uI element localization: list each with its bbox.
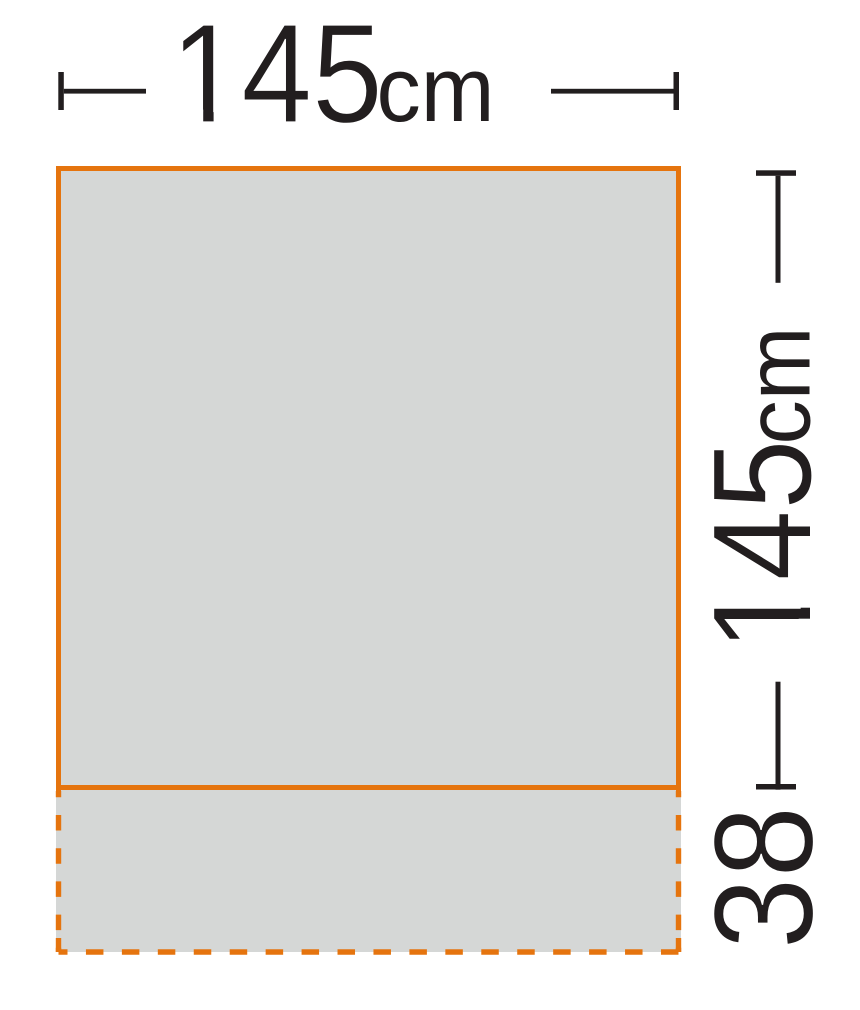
svg-text:38: 38	[684, 806, 842, 949]
svg-text:145cm: 145cm	[683, 327, 841, 652]
svg-text:145cm: 145cm	[171, 0, 495, 152]
